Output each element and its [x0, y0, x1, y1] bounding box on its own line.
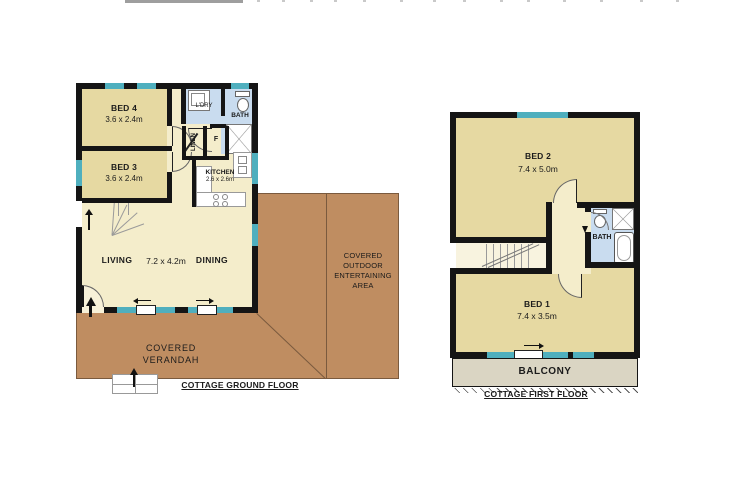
wall	[546, 202, 552, 274]
stair-line	[128, 203, 129, 215]
outdoor-divider-line	[326, 193, 327, 379]
verandah-label-line1: COVERED	[143, 343, 199, 355]
bed1-room	[591, 268, 634, 274]
cropped-ui-artifact	[527, 0, 530, 2]
window	[137, 83, 156, 89]
wall	[182, 126, 186, 158]
entry-steps	[112, 374, 158, 394]
verandah-label-line2: VERANDAH	[143, 355, 199, 367]
shower-icon	[226, 124, 252, 154]
stairs-ground	[82, 203, 140, 239]
first-floor-title: COTTAGE FIRST FLOOR	[484, 390, 588, 399]
outdoor-label-line4: AREA	[334, 281, 392, 291]
bathtub-icon	[614, 232, 634, 264]
bath-label-first: BATH	[593, 234, 612, 242]
wall	[450, 112, 456, 358]
stair-line	[118, 203, 119, 216]
bed1-dims: 7.4 x 3.5m	[517, 312, 557, 321]
outdoor-label-line3: ENTERTAINING	[334, 271, 392, 281]
ground-floor-title: COTTAGE GROUND FLOOR	[181, 381, 298, 390]
kitchen-sink-icon	[233, 152, 252, 178]
linen-label: LINEN	[191, 133, 197, 151]
cropped-ui-artifact	[334, 0, 337, 2]
arrow-head	[130, 368, 138, 375]
window	[105, 83, 124, 89]
shower-icon	[612, 208, 634, 230]
sliding-door	[197, 305, 217, 315]
wall	[167, 89, 172, 126]
sliding-door	[136, 305, 156, 315]
window	[76, 160, 82, 186]
bed3-label: BED 3	[111, 163, 137, 172]
bath-label-ground: BATH	[231, 112, 249, 119]
wall	[181, 89, 186, 124]
cropped-ui-artifact	[282, 0, 285, 2]
sink-bowl	[238, 156, 247, 164]
wall	[182, 156, 229, 160]
wall	[634, 112, 640, 358]
bed2-dims: 7.4 x 5.0m	[518, 165, 558, 174]
living-dining-dims: 7.2 x 4.2m	[146, 257, 186, 266]
cropped-ui-artifact	[400, 0, 403, 2]
outdoor-outline	[76, 313, 77, 379]
cropped-ui-artifact	[310, 0, 313, 2]
kitchen-counter	[196, 192, 246, 207]
wall	[203, 126, 207, 158]
wall	[225, 126, 229, 158]
floor-plan-canvas: COVERED VERANDAH COVERED OUTDOOR ENTERTA…	[0, 0, 750, 500]
window	[217, 307, 233, 313]
living-label: LIVING	[102, 256, 133, 265]
cropped-ui-artifact	[640, 0, 643, 2]
bed4-label: BED 4	[111, 104, 137, 113]
kitchen-dims: 2.6 x 2.6m	[206, 177, 234, 184]
window	[117, 307, 136, 313]
cropped-ui-artifact	[363, 0, 366, 2]
wall	[192, 160, 196, 207]
window	[231, 83, 249, 89]
window	[156, 307, 175, 313]
arrow-shaft	[133, 375, 135, 387]
bed1-label: BED 1	[524, 300, 550, 309]
cropped-ui-artifact	[125, 0, 243, 3]
entry-door-gap	[82, 307, 104, 313]
fridge-label: F	[214, 136, 218, 144]
wall	[585, 262, 634, 268]
outdoor-label-line2: OUTDOOR	[334, 261, 392, 271]
window	[252, 224, 258, 246]
bed2-label: BED 2	[525, 152, 551, 161]
outdoor-area-label: COVERED OUTDOOR ENTERTAINING AREA	[334, 251, 392, 291]
wall	[252, 83, 258, 313]
cropped-ui-artifact	[676, 0, 679, 2]
wall	[456, 237, 546, 243]
window	[252, 153, 258, 184]
wall	[585, 202, 591, 212]
stair-line	[507, 244, 508, 268]
balcony-label: BALCONY	[519, 366, 572, 377]
wall	[82, 146, 172, 151]
stair-line	[500, 244, 501, 268]
tub-inner	[617, 235, 631, 261]
wall	[167, 172, 172, 203]
window	[517, 112, 568, 118]
dining-label: DINING	[196, 256, 228, 265]
verandah-label: COVERED VERANDAH	[143, 343, 199, 366]
outdoor-outline	[398, 193, 399, 379]
cropped-ui-artifact	[257, 0, 260, 2]
cropped-ui-artifact	[433, 0, 436, 2]
bed3-dims: 3.6 x 2.4m	[105, 175, 142, 184]
laundry-label: L'DRY	[195, 103, 212, 110]
wall	[76, 83, 82, 313]
bed4-dims: 3.6 x 2.4m	[105, 116, 142, 125]
wall	[221, 89, 225, 116]
window	[188, 307, 197, 313]
cropped-ui-artifact	[500, 0, 503, 2]
stairs-up-arrow-shaft	[88, 214, 90, 230]
wall	[210, 124, 226, 128]
outdoor-label-line1: COVERED	[334, 251, 392, 261]
wall	[456, 268, 548, 274]
stair-void-gap	[76, 201, 82, 227]
cropped-ui-artifact	[563, 0, 566, 2]
wall	[82, 198, 172, 203]
kitchen-label: KITCHEN	[206, 169, 235, 176]
stair-void-gap	[450, 243, 456, 268]
step-line	[135, 375, 136, 393]
cropped-ui-artifact	[463, 0, 466, 2]
sink-bowl	[238, 166, 247, 174]
cropped-ui-artifact	[600, 0, 603, 2]
